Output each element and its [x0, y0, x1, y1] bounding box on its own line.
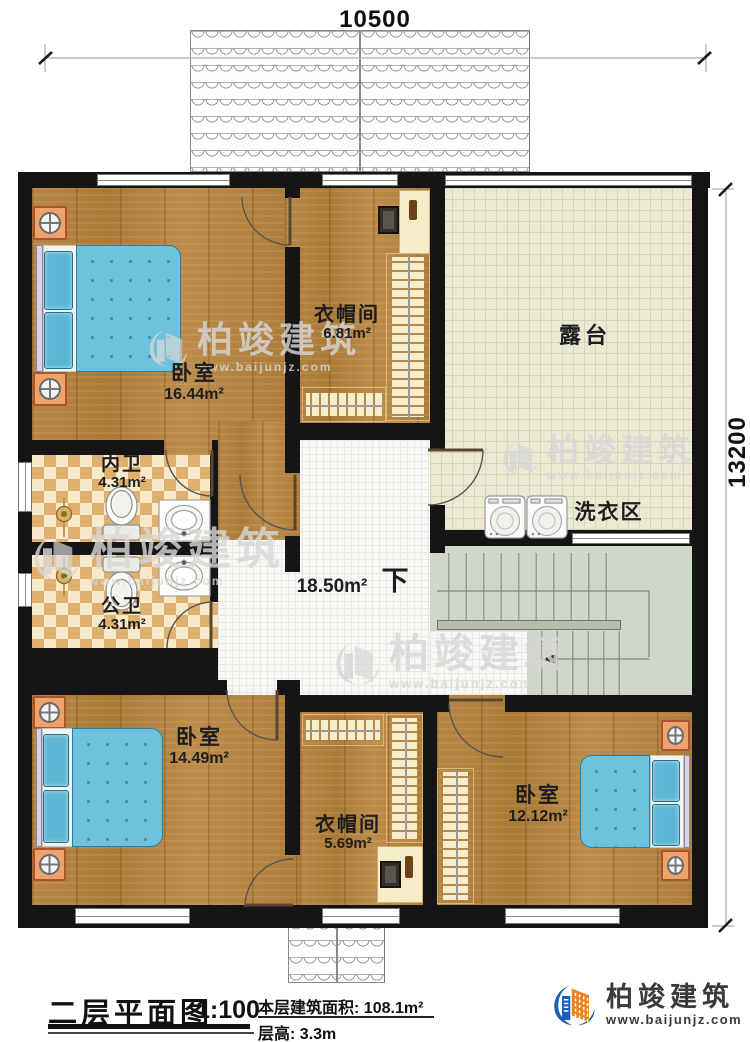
wall: [18, 648, 218, 680]
wall: [300, 695, 423, 712]
floor-height-value: 3.3m: [300, 1026, 336, 1042]
monitor: [380, 861, 401, 888]
wall: [210, 455, 218, 602]
desk-lamp: [405, 856, 413, 878]
window: [322, 174, 398, 186]
window: [75, 908, 190, 924]
bed-right: [580, 755, 690, 848]
window: [322, 908, 400, 924]
nightstand: [661, 720, 690, 751]
stairs-railing: [437, 620, 621, 630]
floor-terrace: [430, 188, 692, 530]
stairs-upper-flight: [432, 553, 620, 622]
nightstand: [661, 850, 690, 881]
dimension-width: 10500: [300, 6, 450, 34]
wall: [423, 712, 437, 905]
window: [18, 462, 32, 512]
window: [18, 573, 32, 607]
floor-stair-hall-corner: [430, 631, 527, 695]
floor-bath-public: [32, 555, 218, 648]
wall: [18, 172, 32, 928]
dimension-height: 13200: [718, 402, 750, 502]
window: [572, 533, 690, 544]
floor-height-row: 层高: 3.3m: [258, 1020, 336, 1042]
wall: [423, 695, 449, 712]
wall: [285, 247, 300, 473]
monitor: [378, 206, 399, 234]
roof-hatch-top-left: [190, 30, 360, 172]
stats-divider: [258, 1016, 434, 1018]
roof-hatch-top-right: [360, 30, 530, 172]
wall: [285, 188, 300, 198]
nightstand: [33, 848, 66, 881]
nightstand: [33, 696, 66, 729]
bed-left: [36, 728, 163, 847]
wall: [212, 440, 218, 455]
wall: [32, 542, 210, 555]
floor-plan-canvas: 10500 13200 卧室16.44m² 衣帽间6.81m² 露台 洗衣区 内…: [0, 0, 750, 1042]
floor-area-value: 108.1m²: [364, 1000, 424, 1017]
wardrobe-rack: [386, 253, 430, 421]
wardrobe-rack: [437, 768, 474, 904]
nightstand: [33, 206, 67, 240]
wall: [18, 440, 164, 455]
wardrobe-rack: [386, 714, 423, 843]
floor-area-label: 本层建筑面积:: [258, 1000, 359, 1017]
wall: [277, 680, 300, 695]
roof-hatch-bottom-right: [337, 922, 385, 983]
wall: [285, 695, 300, 855]
wall: [285, 536, 300, 572]
window: [97, 174, 230, 186]
wall: [505, 695, 692, 712]
floor-height-label: 层高:: [258, 1026, 295, 1042]
wall: [430, 188, 445, 450]
bed-master: [36, 245, 181, 372]
title-underline-thin: [48, 1032, 254, 1034]
brand-logo: 柏竣建筑 www.baijunjz.com: [550, 980, 742, 1030]
wardrobe-rack: [302, 714, 384, 746]
nightstand: [33, 372, 67, 406]
roof-hatch-bottom-left: [288, 922, 337, 983]
drawing-scale: 1:100: [196, 996, 260, 1025]
wall: [18, 680, 227, 695]
terrace-parapet: [445, 175, 692, 186]
brand-logo-icon: [550, 980, 598, 1030]
stairs-lower-flight: [527, 631, 620, 695]
brand-name: 柏竣建筑: [606, 983, 742, 1011]
wall: [692, 172, 708, 928]
brand-website: www.baijunjz.com: [606, 1012, 742, 1027]
floor-area-row: 本层建筑面积: 108.1m²: [258, 994, 423, 1018]
window: [505, 908, 620, 924]
wall: [300, 423, 430, 440]
wardrobe-rack: [302, 387, 386, 422]
desk-lamp: [409, 200, 417, 220]
floor-bath-private: [32, 455, 218, 542]
